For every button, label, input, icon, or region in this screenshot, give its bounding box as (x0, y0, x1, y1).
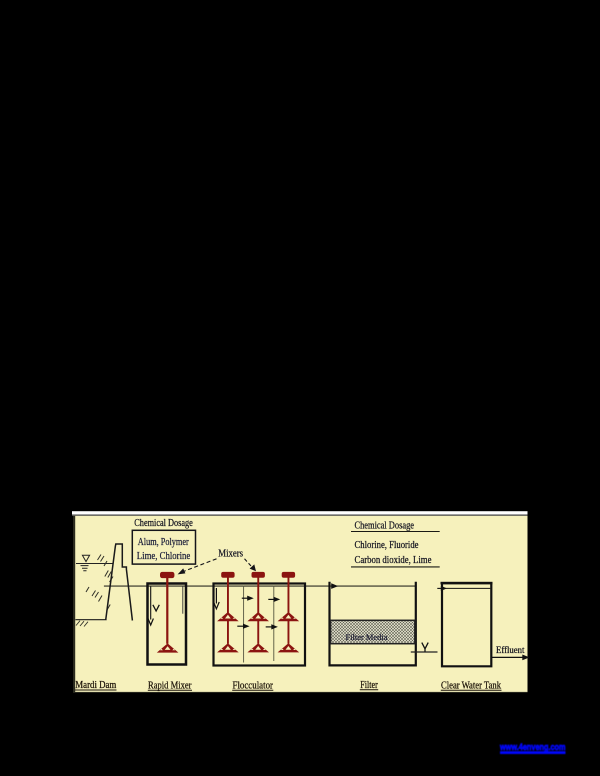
svg-text:Alum, Polymer: Alum, Polymer (138, 537, 190, 548)
svg-text:Chemical Dosage: Chemical Dosage (134, 518, 193, 529)
svg-text:Mixers: Mixers (218, 549, 243, 560)
svg-text:Effluent: Effluent (496, 645, 525, 656)
svg-text:Filter Media: Filter Media (346, 632, 388, 642)
svg-text:Carbon dioxide, Lime: Carbon dioxide, Lime (355, 555, 432, 566)
svg-text:Chlorine, Fluoride: Chlorine, Fluoride (355, 540, 419, 551)
svg-text:Lime, Chlorine: Lime, Chlorine (137, 551, 191, 562)
svg-text:Filter: Filter (360, 680, 378, 691)
svg-text:Clear Water Tank: Clear Water Tank (441, 680, 501, 691)
svg-text:Chemical Dosage: Chemical Dosage (355, 520, 415, 531)
